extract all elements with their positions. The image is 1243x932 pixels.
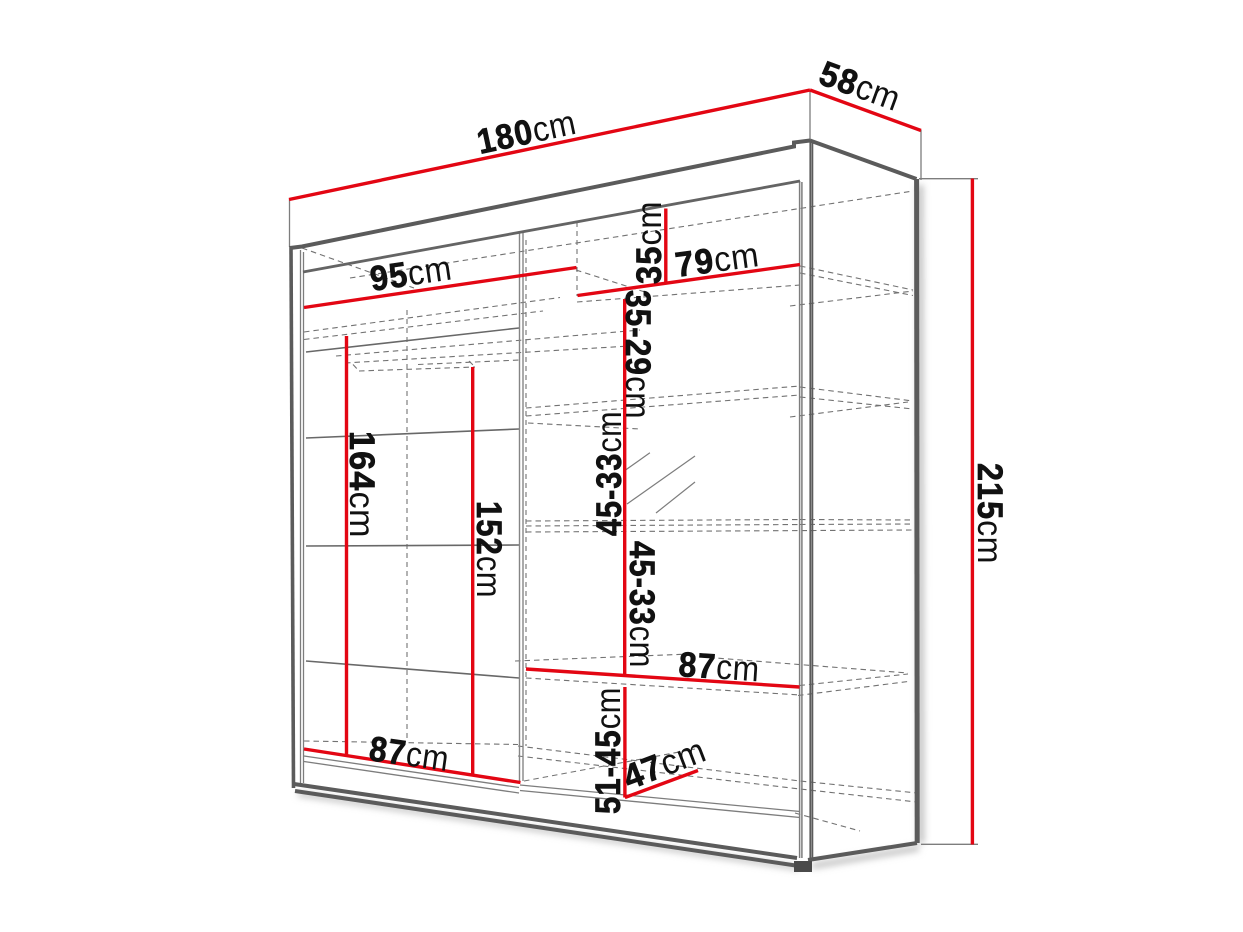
svg-text:45-33cm: 45-33cm: [622, 541, 661, 668]
svg-text:87cm: 87cm: [677, 645, 760, 689]
svg-text:164cm: 164cm: [342, 431, 381, 538]
svg-text:215cm: 215cm: [970, 463, 1009, 564]
svg-text:51-45cm: 51-45cm: [589, 687, 628, 814]
svg-text:35-29cm: 35-29cm: [618, 290, 657, 419]
svg-text:152cm: 152cm: [469, 501, 508, 598]
svg-text:35cm: 35cm: [630, 201, 669, 284]
svg-text:45-33cm: 45-33cm: [590, 411, 629, 536]
